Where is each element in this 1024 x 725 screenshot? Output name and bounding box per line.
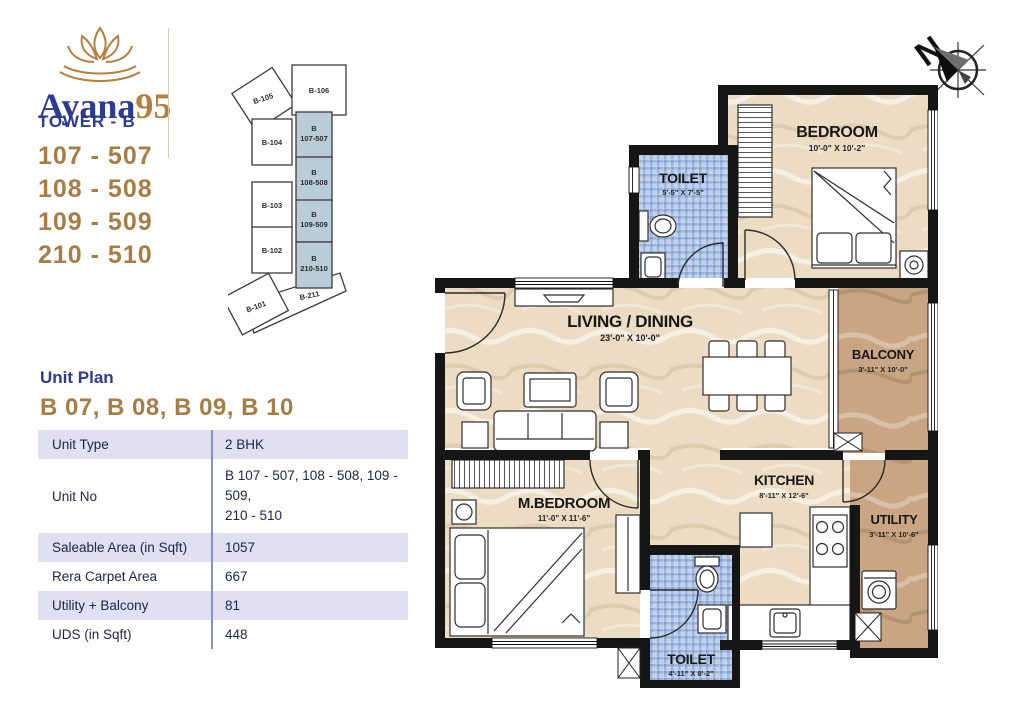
window — [515, 278, 613, 288]
window — [928, 545, 938, 630]
tower-title: TOWER - B — [38, 112, 218, 132]
kitchen-dims: 8'-11" X 12'-6" — [759, 491, 809, 500]
toilet-2-wc — [695, 557, 719, 592]
tower-list: TOWER - B 107 - 507 108 - 508 109 - 509 … — [38, 112, 218, 272]
keyplan-label: B-106 — [309, 86, 329, 95]
shaft-box — [618, 648, 640, 678]
dining-set — [703, 341, 791, 411]
master-wardrobe — [452, 460, 564, 488]
keyplan-label: B — [311, 124, 317, 133]
utility-label: UTILITY — [870, 512, 918, 527]
window — [629, 167, 639, 193]
bedroom-label: BEDROOM — [796, 124, 877, 141]
bedroom-dims: 10'-0" X 10'-2" — [809, 143, 866, 153]
toilet-2-label: TOILET — [667, 651, 715, 667]
keyplan-label: B-102 — [262, 246, 282, 255]
row-label: Rera Carpet Area — [38, 562, 211, 591]
master-bedroom-label: M.BEDROOM — [518, 495, 610, 512]
bedroom-wardrobe — [738, 105, 772, 217]
floor-plan: BEDROOM 10'-0" X 10'-2" TOILET 5'-5" X 7… — [432, 75, 938, 695]
coffee-table — [524, 373, 576, 407]
table-row: Rera Carpet Area 667 — [38, 562, 408, 591]
armchair — [600, 372, 638, 412]
armchair — [457, 372, 491, 410]
table-row: Utility + Balcony 81 — [38, 591, 408, 620]
row-label: Unit No — [38, 459, 211, 533]
tv-console — [515, 289, 613, 306]
keyplan-label: 107-507 — [300, 134, 328, 143]
row-value-line: 210 - 510 — [225, 506, 404, 526]
shaft-box — [834, 433, 862, 451]
side-table — [600, 422, 628, 448]
window — [762, 641, 837, 649]
tower-unit-range: 210 - 510 — [38, 239, 218, 272]
key-plan-svg: B-105 B-106 B-104 B-103 B-102 B-211 B-10… — [228, 55, 373, 345]
keyplan-label: B — [311, 254, 317, 263]
row-value: 2 BHK — [211, 430, 408, 459]
row-value: 667 — [211, 562, 408, 591]
row-label: Saleable Area (in Sqft) — [38, 533, 211, 562]
keyplan-label: 108-508 — [300, 178, 328, 187]
sofa — [494, 411, 596, 451]
balcony-dims: 3'-11" X 10'-0" — [858, 365, 908, 374]
keyplan-label: B — [311, 210, 317, 219]
brochure-page: Ayana95 TOWER - B 107 - 507 108 - 508 10… — [0, 0, 1024, 725]
kitchen-sink — [770, 609, 800, 637]
row-value: 81 — [211, 591, 408, 620]
row-value-line: B 107 - 507, 108 - 508, 109 - 509, — [225, 466, 404, 506]
toilet-2-dims: 4'-11" X 8'-2" — [668, 669, 714, 678]
row-value: 448 — [211, 620, 408, 649]
kitchen-label: KITCHEN — [754, 472, 814, 488]
tower-unit-range: 108 - 508 — [38, 173, 218, 206]
bedside-table — [452, 500, 476, 524]
unit-spec-table: Unit Type 2 BHK Unit No B 107 - 507, 108… — [38, 430, 408, 649]
toilet-2-sink — [698, 605, 726, 633]
keyplan-label: B-104 — [262, 138, 283, 147]
keyplan-label: 109-509 — [300, 220, 328, 229]
bedroom-bed — [812, 168, 896, 268]
utility-dims: 3'-11" X 10'-6" — [869, 530, 919, 539]
living-dining-dims: 23'-0" X 10'-0" — [600, 333, 660, 343]
unit-plan-subheading: B 07, B 08, B 09, B 10 — [40, 394, 420, 422]
toilet-1-sink — [641, 253, 665, 281]
window — [492, 638, 597, 648]
washing-machine — [862, 571, 896, 609]
row-value: 1057 — [211, 533, 408, 562]
bedroom-side-table — [900, 251, 928, 279]
master-bedroom-dims: 11'-0" X 11'-6" — [538, 514, 591, 523]
compass-rose-icon — [930, 42, 986, 98]
kitchen-fridge — [740, 513, 772, 547]
window — [928, 110, 938, 210]
row-label: Unit Type — [38, 430, 211, 459]
lotus-icon — [60, 28, 140, 81]
master-side-wardrobe — [616, 515, 640, 593]
table-row: Saleable Area (in Sqft) 1057 — [38, 533, 408, 562]
row-label: Utility + Balcony — [38, 591, 211, 620]
keyplan-label: B — [311, 168, 317, 177]
keyplan-label: 210-510 — [300, 264, 328, 273]
side-table — [462, 422, 488, 448]
tower-key-plan: B-105 B-106 B-104 B-103 B-102 B-211 B-10… — [228, 55, 373, 345]
master-bed — [450, 528, 584, 636]
keyplan-label: B-103 — [262, 201, 282, 210]
corridor-floor — [650, 448, 722, 545]
floor-plan-svg: BEDROOM 10'-0" X 10'-2" TOILET 5'-5" X 7… — [432, 75, 938, 695]
balcony-sliding-door — [829, 290, 838, 448]
row-value: B 107 - 507, 108 - 508, 109 - 509, 210 -… — [211, 459, 408, 533]
unit-plan-heading: Unit Plan — [40, 368, 420, 388]
table-row: Unit No B 107 - 507, 108 - 508, 109 - 50… — [38, 459, 408, 533]
toilet-1-label: TOILET — [659, 170, 707, 186]
balcony-label: BALCONY — [852, 347, 915, 362]
tower-unit-range: 107 - 507 — [38, 140, 218, 173]
table-row: Unit Type 2 BHK — [38, 430, 408, 459]
window — [928, 303, 938, 431]
unit-plan-headings: Unit Plan B 07, B 08, B 09, B 10 — [40, 368, 420, 422]
shaft-box — [855, 613, 881, 641]
table-row: UDS (in Sqft) 448 — [38, 620, 408, 649]
toilet-1-dims: 5'-5" X 7'-5" — [662, 188, 704, 197]
row-label: UDS (in Sqft) — [38, 620, 211, 649]
tower-unit-range: 109 - 509 — [38, 206, 218, 239]
living-dining-label: LIVING / DINING — [567, 312, 693, 331]
